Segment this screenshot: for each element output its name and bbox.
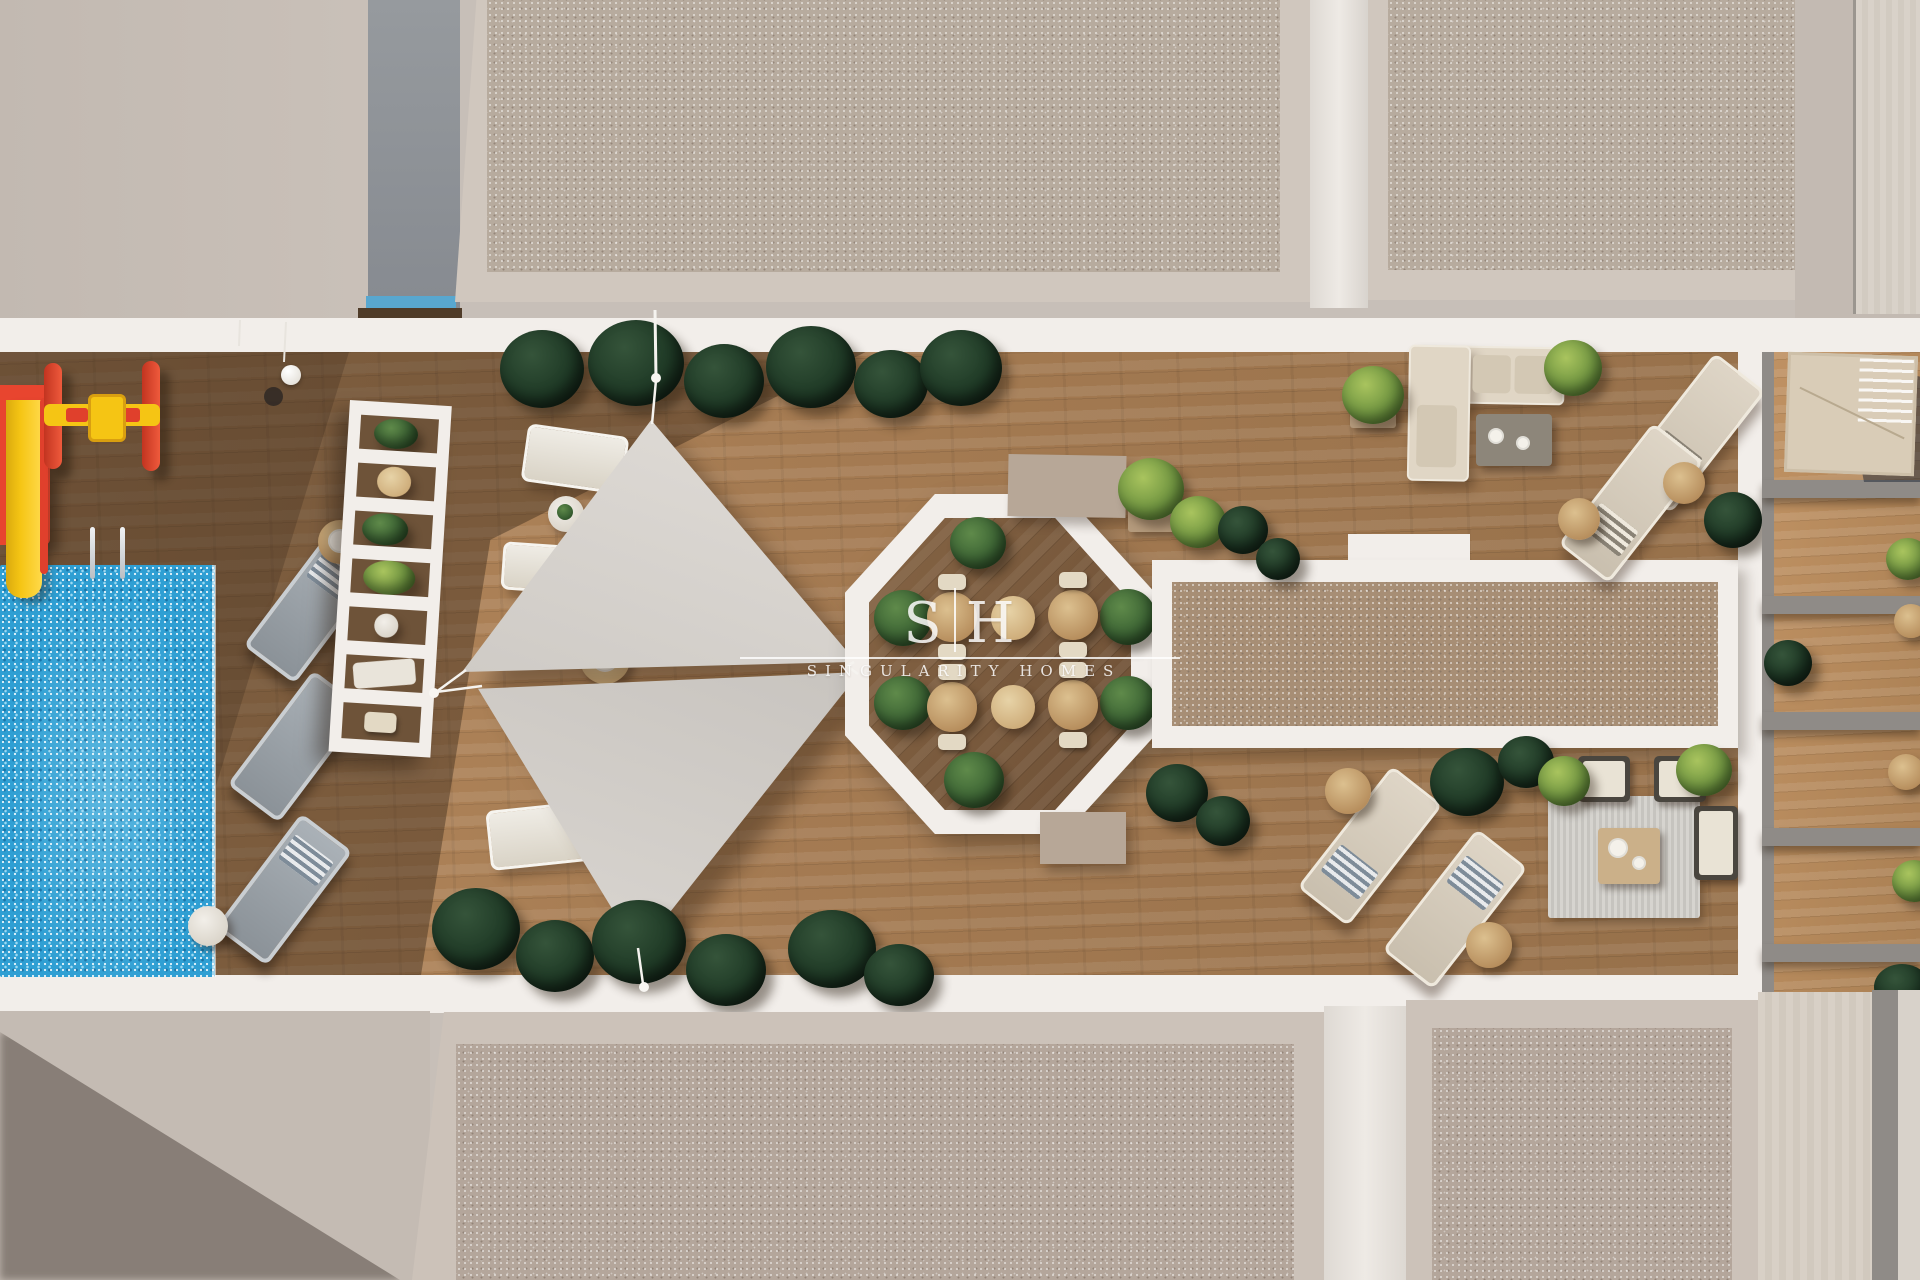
pergola-bay-deck (347, 606, 427, 645)
terrace-wall-left (1762, 352, 1774, 1012)
edge-bottom-right (1898, 990, 1920, 1280)
yucca-plant (1170, 496, 1226, 548)
terrace-divider (1762, 944, 1920, 962)
rooftop-amenity-render: SH SINGULARITY HOMES (0, 0, 1920, 1280)
gazebo-chair (938, 644, 966, 660)
gazebo-chair (1059, 662, 1087, 678)
deck-plant (864, 944, 934, 1006)
south-side-table-1 (1325, 768, 1371, 814)
south-lounger-1-towel (1320, 844, 1379, 901)
playground-roller-hub (88, 394, 126, 442)
gazebo-plant (1100, 676, 1156, 730)
pergola-plant-icon (373, 418, 419, 451)
canopy-stair-lines (1858, 358, 1914, 428)
gazebo-round-table (991, 685, 1035, 729)
patio-bench (1694, 806, 1738, 880)
shade-sail-north-canvas (462, 420, 856, 672)
se-plant (1430, 748, 1504, 816)
neighbor-wall-gray (368, 0, 460, 318)
north-side-table-1 (1663, 462, 1705, 504)
gazebo-connector-south (1040, 812, 1126, 864)
roof-gravel-bottom-surface (456, 1044, 1294, 1280)
terrace-plant (1892, 860, 1920, 902)
gazebo-plant (874, 590, 932, 646)
pool-ladder-rail-left (90, 527, 95, 579)
deck-plant (920, 330, 1002, 406)
deck-plant (432, 888, 520, 970)
terrace-plant (1764, 640, 1812, 686)
gazebo-connector-north (1007, 454, 1126, 518)
patio-table-plate (1608, 838, 1628, 858)
south-lounger-2-towel (1446, 855, 1505, 912)
deck-plant (684, 344, 764, 418)
lounge-plant (1256, 538, 1300, 580)
pergola-table (376, 466, 412, 498)
lounge-plant (1704, 492, 1762, 548)
roof-gravel-bottom (412, 1012, 1324, 1280)
pergola-bay-plant-1 (359, 415, 439, 454)
gazebo-chair (1059, 732, 1087, 748)
deck-plant (592, 900, 686, 984)
sofa-cushion (1472, 355, 1511, 394)
terrace-table (1894, 604, 1920, 638)
roof-gravel-top-left-surface (487, 0, 1280, 272)
yucca-plant (1342, 366, 1404, 424)
gazebo-plant (874, 676, 932, 730)
gazebo-dining-table (927, 682, 977, 732)
se-plant (1538, 756, 1590, 806)
walkway-bottom-gap (1324, 1006, 1406, 1280)
deck-lamp-shadow (264, 387, 283, 406)
pool-ladder-rail-right (120, 527, 125, 579)
gazebo-plant (1100, 589, 1156, 645)
path-bottom-right (1758, 992, 1872, 1280)
terrace-plant (1886, 538, 1920, 580)
gravel-strip-surface (1172, 582, 1718, 726)
pergola-bay-plant-2 (353, 511, 433, 550)
wall-strip-bottom-right (1872, 990, 1898, 1280)
roof-gravel-bottom-right-surface (1432, 1028, 1732, 1280)
pergola-bay-seat (341, 702, 421, 743)
playground-slide (6, 400, 42, 598)
pergola-small-table (374, 613, 399, 638)
roof-gravel-bottom-right (1406, 1000, 1758, 1280)
terrace-divider (1762, 712, 1920, 730)
lounge-plant (1544, 340, 1602, 396)
private-terraces (1762, 352, 1920, 1012)
gazebo-chair (938, 664, 966, 680)
roof-gravel-top-right-surface (1388, 0, 1800, 270)
terrace-canopy (1784, 352, 1918, 476)
pergola-seat (364, 711, 397, 733)
gazebo-chair (1059, 642, 1087, 658)
terrace-divider (1762, 480, 1920, 498)
pergola-lounger (352, 658, 416, 689)
se-plant (1196, 796, 1250, 846)
path-top-right (1853, 0, 1920, 314)
pergola-bay-plant-3 (350, 558, 430, 597)
gazebo-round-table (991, 596, 1035, 640)
deck-plant (588, 320, 684, 406)
gazebo-plant (944, 752, 1004, 808)
lounge-coffee-table (1476, 414, 1552, 466)
terrace-table (1888, 754, 1920, 790)
deck-lamp-globe (281, 365, 301, 385)
lounge-table-plate (1516, 436, 1530, 450)
roof-gravel-top-right (1368, 0, 1838, 300)
pergola-plant-icon (361, 512, 409, 547)
patio-coffee-table (1598, 828, 1660, 884)
pool-corner-table (188, 906, 228, 946)
gazebo-chair (938, 734, 966, 750)
gazebo-dining-table (1048, 590, 1098, 640)
deck-plant (516, 920, 594, 992)
axle-red-segment-left (66, 408, 88, 422)
lounge-table-plate (1488, 428, 1504, 444)
patio-table-plate (1632, 856, 1646, 870)
pergola-bay-lounger (344, 654, 424, 693)
deck-plant (766, 326, 856, 408)
gazebo-chair (1059, 572, 1087, 588)
gazebo-dining-table (927, 592, 977, 642)
roof-gravel-top-left (455, 0, 1310, 302)
deck-plant (500, 330, 584, 408)
sofa-cushion (1416, 405, 1457, 468)
gazebo-chair (938, 574, 966, 590)
gazebo-dining-table (1048, 680, 1098, 730)
gravel-strip-frame (1152, 560, 1738, 748)
pergola-plant-icon (362, 559, 416, 596)
deck-plant (854, 350, 928, 418)
deck-plant (788, 910, 876, 988)
walkway-top-gap (1310, 0, 1368, 308)
north-side-table-2 (1558, 498, 1600, 540)
deck-plant (686, 934, 766, 1006)
lattice-pergola (329, 400, 452, 758)
gazebo-plant (950, 517, 1006, 569)
swimming-pool (0, 565, 215, 977)
pergola-bay-table (356, 463, 436, 502)
se-plant (1676, 744, 1732, 796)
terrace-divider (1762, 828, 1920, 846)
pool-lounger-3-towel (278, 834, 334, 886)
south-side-table-2 (1466, 922, 1512, 968)
patio-bench-cushion (1699, 811, 1733, 875)
shade-sail-north (462, 420, 856, 672)
